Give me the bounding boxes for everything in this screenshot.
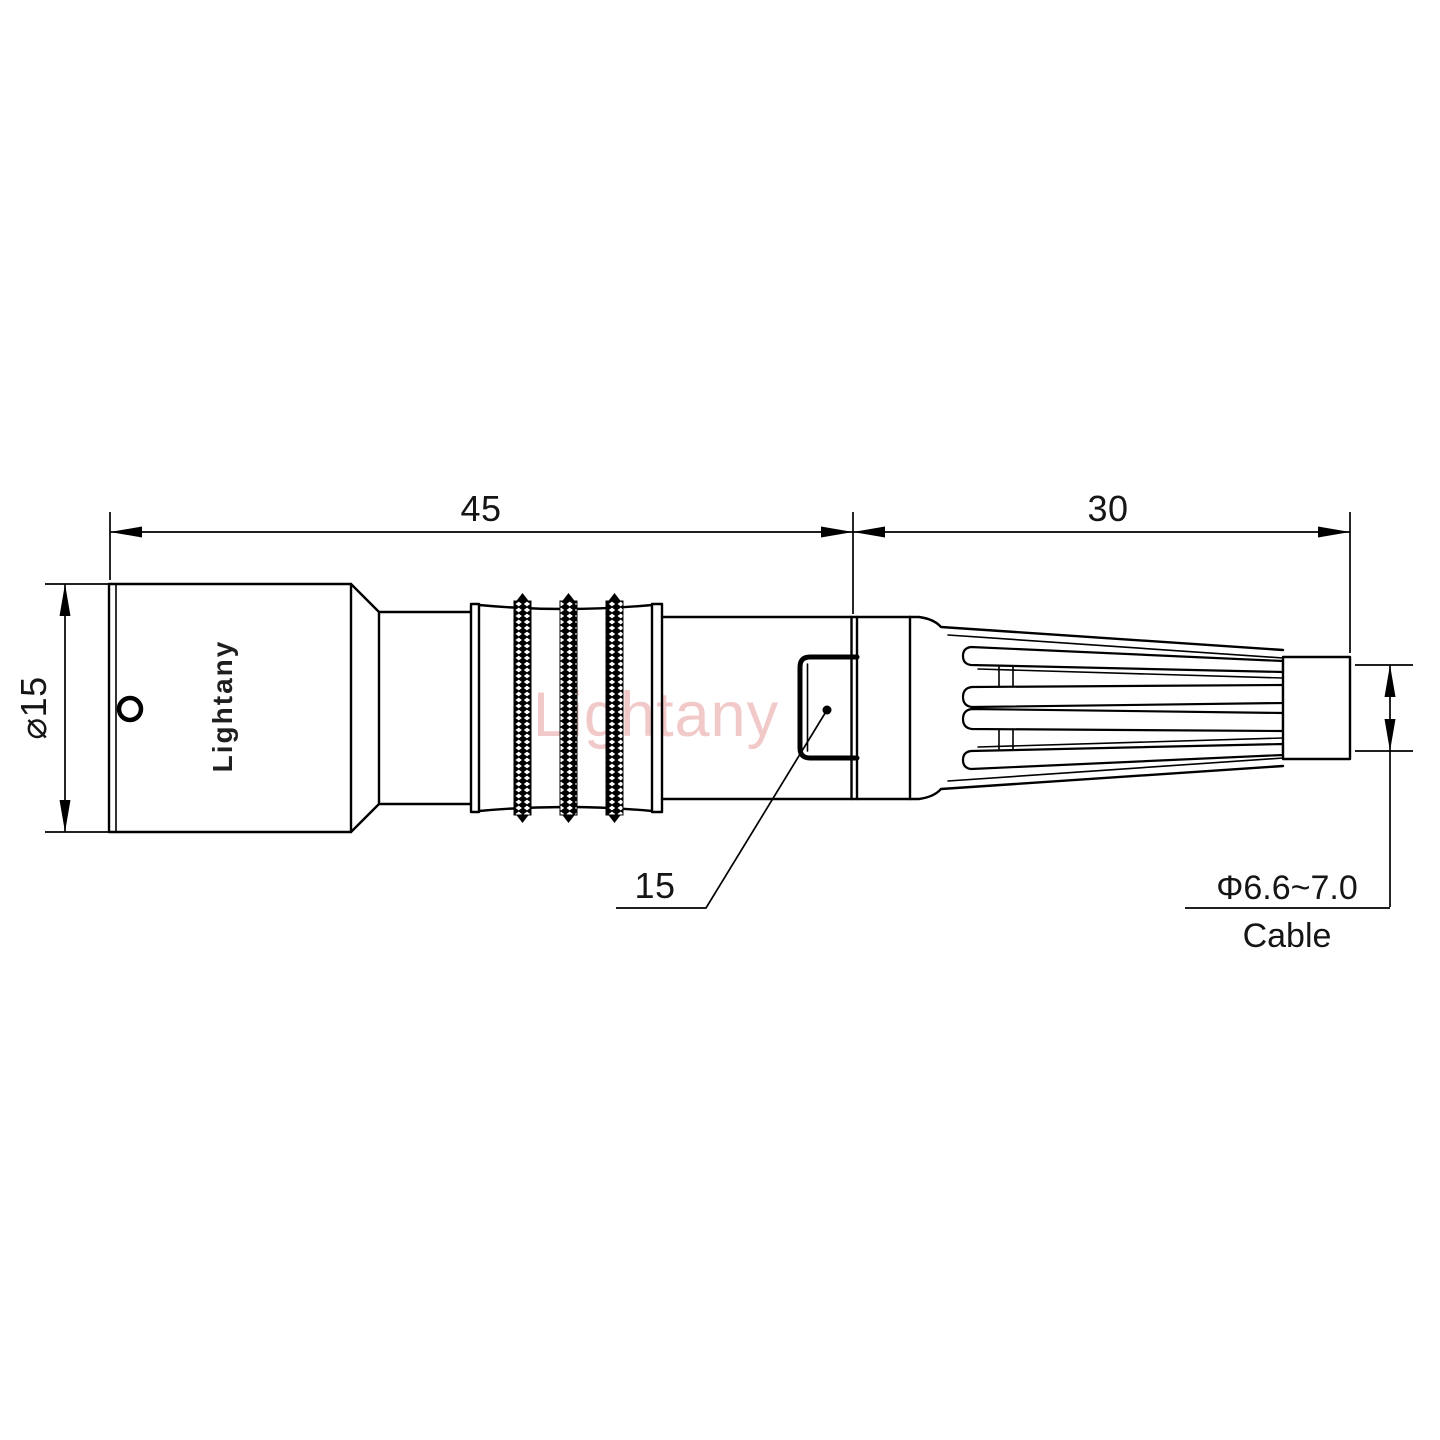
brand-engraving: Lightany xyxy=(207,640,238,773)
connector-drawing-svg: Lightany Lightany xyxy=(0,0,1440,1440)
keyway-callout-label: 15 xyxy=(634,865,675,906)
orientation-hole xyxy=(119,698,141,720)
cable-word-label: Cable xyxy=(1243,917,1332,955)
technical-drawing-page: Lightany Lightany xyxy=(0,0,1440,1440)
dim-front-length-label: 45 xyxy=(460,488,501,529)
knurl-ring-2 xyxy=(560,593,577,823)
cable-diameter-label: Φ6.6~7.0 xyxy=(1216,869,1358,907)
knurl-ring-3 xyxy=(606,593,623,823)
cable-stub xyxy=(1283,657,1350,759)
dim-shell-diameter-label: ⌀15 xyxy=(13,676,54,739)
knurl-ring-1 xyxy=(514,593,531,823)
dim-rear-length-label: 30 xyxy=(1087,488,1128,529)
